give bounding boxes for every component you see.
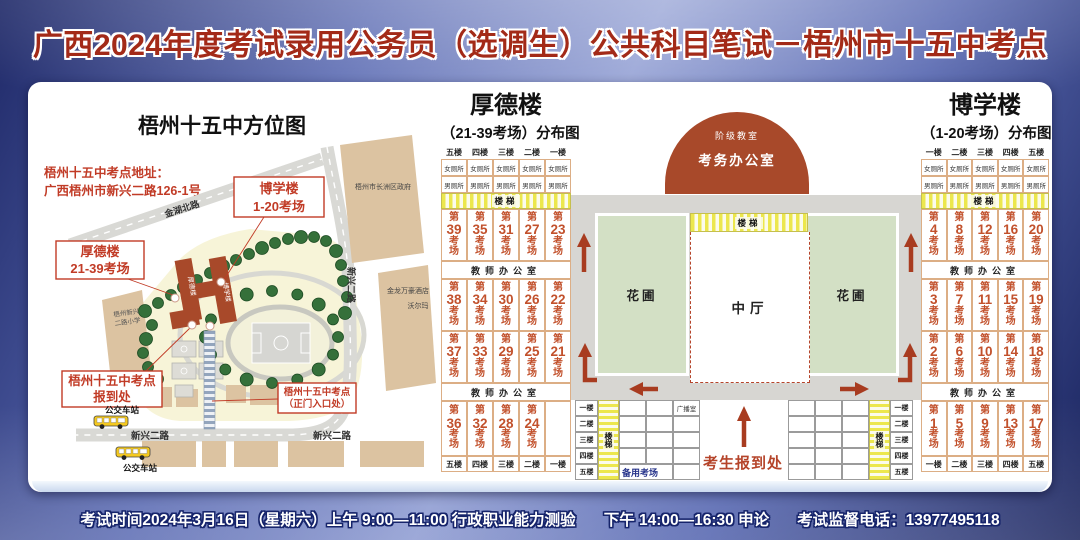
floor-footer-label: 一楼 [545,456,571,472]
exam-room-cell: 第28考场 [493,401,519,456]
exam-room-cell: 第39考场 [441,209,467,261]
teacher-office-cell: 教师办公室 [441,261,571,279]
exam-room-cell: 第35考场 [467,209,493,261]
annex-cell [815,432,842,448]
poi-walmart-label: 沃尔玛 [408,301,429,310]
annex-cell [815,464,842,480]
road-xinxing-south-label-2: 新兴二路 [313,430,352,442]
annex-floor-label: 四楼 [575,448,598,464]
annex-cell [842,432,869,448]
annex-floor-label: 一楼 [575,400,598,416]
exam-room-cell: 第7考场 [947,279,973,331]
boxue-title: 博学楼 [921,93,1049,119]
svg-text:1-20考场: 1-20考场 [253,199,305,214]
bus-icon [94,416,128,429]
exam-room-cell: 第12考场 [972,209,998,261]
floor-header-label: 四楼 [467,146,493,159]
checkin-label: 考生报到处 [683,452,803,473]
entrance-walkway [204,331,215,429]
female-toilet-cell: 女厕所 [467,159,493,176]
female-toilet-cell: 女厕所 [921,159,947,176]
footer-bar: 考试时间2024年3月16日（星期六）上午 9:00—11:00 行政职业能力测… [0,508,1080,530]
female-toilet-cell: 女厕所 [493,159,519,176]
svg-text:报到处: 报到处 [93,389,131,404]
exam-room-cell: 第27考场 [519,209,545,261]
bus-station-label-2: 公交车站 [123,463,158,473]
annex-cell [788,416,815,432]
map-address-line2: 广西梧州市新兴二路126-1号 [44,183,201,198]
houde-building-section: 厚德楼 （21-39考场）分布图 五楼四楼三楼二楼一楼女厕所女厕所女厕所女厕所女… [441,93,571,143]
stairs-strip: 楼梯 [869,400,890,480]
annex-right-grid: 一楼二楼三楼四楼五楼楼梯 [788,400,913,480]
floor-header-label: 二楼 [947,146,973,159]
exam-room-cell: 第15考场 [998,279,1024,331]
annex-floor-label: 四楼 [890,448,913,464]
exam-room-cell: 第16考场 [998,209,1024,261]
houde-subtitle: （21-39考场）分布图 [441,122,571,143]
svg-text:博学楼: 博学楼 [259,181,298,196]
annex-cell [646,416,673,432]
houde-title: 厚德楼 [441,93,571,119]
exam-room-cell: 第22考场 [545,279,571,331]
female-toilet-cell: 女厕所 [1023,159,1049,176]
map-title: 梧州十五中方位图 [138,114,306,138]
exam-room-cell: 第18考场 [1023,331,1049,383]
annex-cell [673,416,700,432]
annex-cell [842,400,869,416]
annex-floor-label: 一楼 [890,400,913,416]
annex-floor-label: 三楼 [575,432,598,448]
male-toilet-cell: 男厕所 [1023,176,1049,193]
broadcast-room-cell: 广播室 [673,400,700,416]
exam-room-cell: 第10考场 [972,331,998,383]
floor-footer-label: 四楼 [467,456,493,472]
annex-cell [815,416,842,432]
annex-left-grid: 一楼广播室二楼三楼四楼五楼备用考场楼梯 [575,400,700,480]
empty-room-cell [545,401,571,456]
exam-room-cell: 第14考场 [998,331,1024,383]
exam-room-cell: 第4考场 [921,209,947,261]
floor-footer-label: 二楼 [947,456,973,472]
stairs-strip: 楼梯 [690,213,808,232]
exam-room-cell: 第36考场 [441,401,467,456]
boxue-subtitle: （1-20考场）分布图 [921,122,1049,143]
floor-footer-label: 一楼 [921,456,947,472]
callout-houde: 厚德楼 21-39考场 [56,241,144,279]
exam-room-cell: 第17考场 [1023,401,1049,456]
annex-floor-label: 三楼 [890,432,913,448]
map-address-line1: 梧州十五中考点地址： [44,165,169,180]
floor-footer-label: 三楼 [972,456,998,472]
exam-room-cell: 第23考场 [545,209,571,261]
exam-room-cell: 第9考场 [972,401,998,456]
male-toilet-cell: 男厕所 [467,176,493,193]
svg-text:梧州十五中考点: 梧州十五中考点 [284,386,351,398]
bus-station-label-1: 公交车站 [105,405,140,415]
exam-room-cell: 第8考场 [947,209,973,261]
male-toilet-cell: 男厕所 [519,176,545,193]
female-toilet-cell: 女厕所 [998,159,1024,176]
exam-office-label: 考务办公室 [665,149,809,169]
teacher-office-cell: 教师办公室 [921,261,1049,279]
teacher-office-cell: 教师办公室 [921,383,1049,401]
male-toilet-cell: 男厕所 [493,176,519,193]
exam-room-cell: 第26考场 [519,279,545,331]
exam-room-cell: 第19考场 [1023,279,1049,331]
road-xinxing-south-label-1: 新兴二路 [131,430,170,442]
annex-cell [815,448,842,464]
floor-header-label: 一楼 [545,146,571,159]
stairs-strip: 楼梯 [598,400,619,480]
teacher-office-cell: 教师办公室 [441,383,571,401]
annex-floor-label: 二楼 [890,416,913,432]
campus-location-map: 梧州十五中方位图 梧州十五中考点地址： 广西梧州市新兴二路126-1号 [30,85,440,490]
annex-cell [842,416,869,432]
female-toilet-cell: 女厕所 [947,159,973,176]
stairs-strip: 楼梯 [441,193,571,209]
female-toilet-cell: 女厕所 [441,159,467,176]
flower-bed-right: 花圃 [808,216,896,373]
male-toilet-cell: 男厕所 [545,176,571,193]
central-hall: 中厅 [690,232,810,383]
floor-header-label: 四楼 [998,146,1024,159]
callout-boxue: 博学楼 1-20考场 [234,177,324,217]
annex-cell [619,432,646,448]
boxue-floor-grid: 一楼二楼三楼四楼五楼女厕所女厕所女厕所女厕所女厕所男厕所男厕所男厕所男厕所男厕所… [921,146,1049,472]
exam-time-morning: 考试时间2024年3月16日（星期六）上午 9:00—11:00 行政职业能力测… [80,508,575,530]
floor-header-label: 五楼 [441,146,467,159]
annex-floor-label: 五楼 [890,464,913,480]
floor-footer-label: 三楼 [493,456,519,472]
annex-cell [842,448,869,464]
exam-room-cell: 第29考场 [493,331,519,383]
annex-cell [646,432,673,448]
exam-room-cell: 第30考场 [493,279,519,331]
annex-cell [646,400,673,416]
exam-room-cell: 第24考场 [519,401,545,456]
svg-text:21-39考场: 21-39考场 [70,261,129,276]
floor-header-label: 二楼 [519,146,545,159]
male-toilet-cell: 男厕所 [441,176,467,193]
exam-venue-poster: 广西2024年度考试录用公务员（选调生）公共科目笔试－梧州市十五中考点 梧州十五… [0,0,1080,540]
svg-text:（正门入口处）: （正门入口处） [284,398,351,410]
backup-room-cell: 备用考场 [619,464,673,480]
female-toilet-cell: 女厕所 [972,159,998,176]
floor-header-label: 三楼 [493,146,519,159]
annex-cell [619,400,646,416]
svg-text:厚德楼: 厚德楼 [80,244,119,259]
houde-floor-grid: 五楼四楼三楼二楼一楼女厕所女厕所女厕所女厕所女厕所男厕所男厕所男厕所男厕所男厕所… [441,146,571,472]
annex-cell [646,448,673,464]
exam-room-cell: 第32考场 [467,401,493,456]
annex-floor-label: 五楼 [575,464,598,480]
floor-footer-label: 五楼 [441,456,467,472]
poster-title: 广西2024年度考试录用公务员（选调生）公共科目笔试－梧州市十五中考点 [0,20,1080,64]
annex-cell [619,448,646,464]
floor-footer-label: 二楼 [519,456,545,472]
poi-hotel-label: 金龙万豪酒店 [387,286,429,295]
male-toilet-cell: 男厕所 [972,176,998,193]
annex-cell [842,464,869,480]
floor-header-label: 三楼 [972,146,998,159]
annex-cell [788,432,815,448]
road-xinxing-east-label: 新兴二路 [346,267,357,304]
exam-room-cell: 第3考场 [921,279,947,331]
callout-checkin: 梧州十五中考点 报到处 [62,371,162,407]
floor-header-label: 一楼 [921,146,947,159]
exam-room-cell: 第38考场 [441,279,467,331]
poi-government-label: 梧州市长洲区政府 [355,182,411,191]
male-toilet-cell: 男厕所 [921,176,947,193]
exam-room-cell: 第25考场 [519,331,545,383]
exam-room-cell: 第1考场 [921,401,947,456]
annex-floor-label: 二楼 [575,416,598,432]
exam-room-cell: 第13考场 [998,401,1024,456]
floor-footer-label: 五楼 [1023,456,1049,472]
female-toilet-cell: 女厕所 [545,159,571,176]
floor-header-label: 五楼 [1023,146,1049,159]
exam-room-cell: 第6考场 [947,331,973,383]
male-toilet-cell: 男厕所 [998,176,1024,193]
exam-room-cell: 第33考场 [467,331,493,383]
exam-room-cell: 第2考场 [921,331,947,383]
exam-room-cell: 第31考场 [493,209,519,261]
exam-room-cell: 第5考场 [947,401,973,456]
exam-room-cell: 第11考场 [972,279,998,331]
floor-footer-label: 四楼 [998,456,1024,472]
female-toilet-cell: 女厕所 [519,159,545,176]
male-toilet-cell: 男厕所 [947,176,973,193]
annex-cell [619,416,646,432]
callout-gate: 梧州十五中考点 （正门入口处） [278,383,356,413]
exam-room-cell: 第20考场 [1023,209,1049,261]
exam-time-afternoon: 下午 14:00—16:30 申论 [604,508,769,530]
supervision-phone: 考试监督电话：13977495118 [797,508,999,530]
flower-bed-left: 花圃 [598,216,686,373]
svg-text:梧州十五中考点: 梧州十五中考点 [68,373,156,388]
lecture-hall-label: 阶级教室 [665,129,809,142]
exam-room-cell: 第21考场 [545,331,571,383]
boxue-building-section: 博学楼 （1-20考场）分布图 一楼二楼三楼四楼五楼女厕所女厕所女厕所女厕所女厕… [921,93,1049,143]
annex-cell [788,400,815,416]
stairs-strip: 楼梯 [921,193,1049,209]
annex-cell [673,432,700,448]
exam-room-cell: 第37考场 [441,331,467,383]
annex-cell [815,400,842,416]
exam-room-cell: 第34考场 [467,279,493,331]
